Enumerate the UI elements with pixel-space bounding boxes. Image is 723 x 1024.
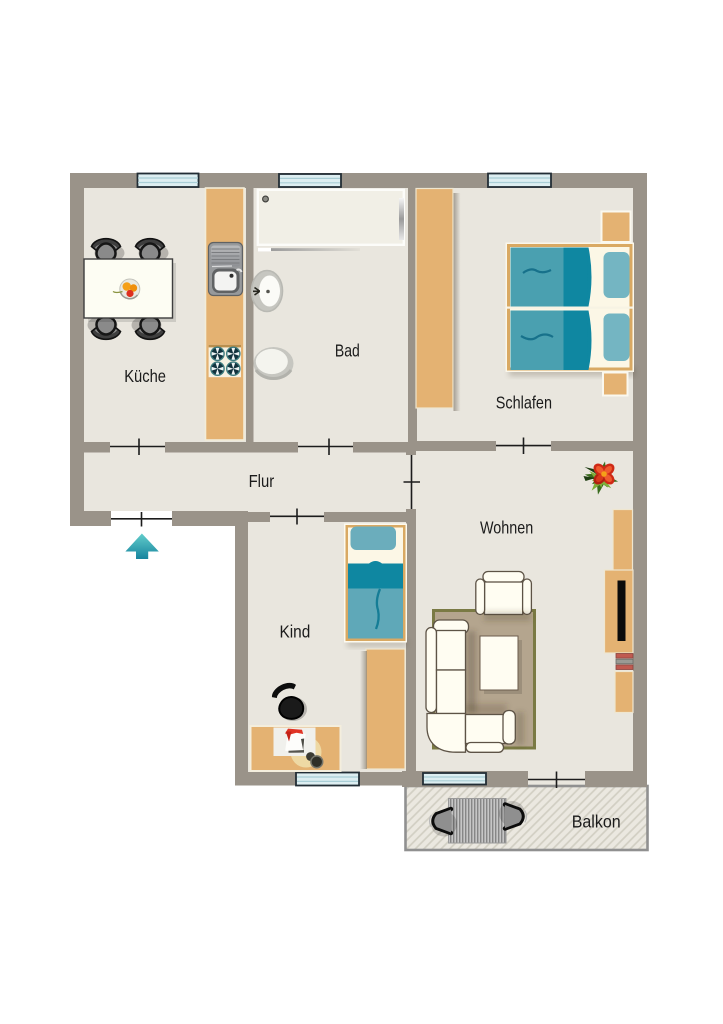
svg-text:Flur: Flur <box>249 471 275 491</box>
svg-text:Küche: Küche <box>124 366 166 386</box>
svg-text:Bad: Bad <box>335 341 360 361</box>
svg-text:Balkon: Balkon <box>572 811 621 831</box>
svg-text:Wohnen: Wohnen <box>480 518 533 538</box>
svg-text:Kind: Kind <box>280 621 311 641</box>
svg-text:Schlafen: Schlafen <box>496 393 552 413</box>
